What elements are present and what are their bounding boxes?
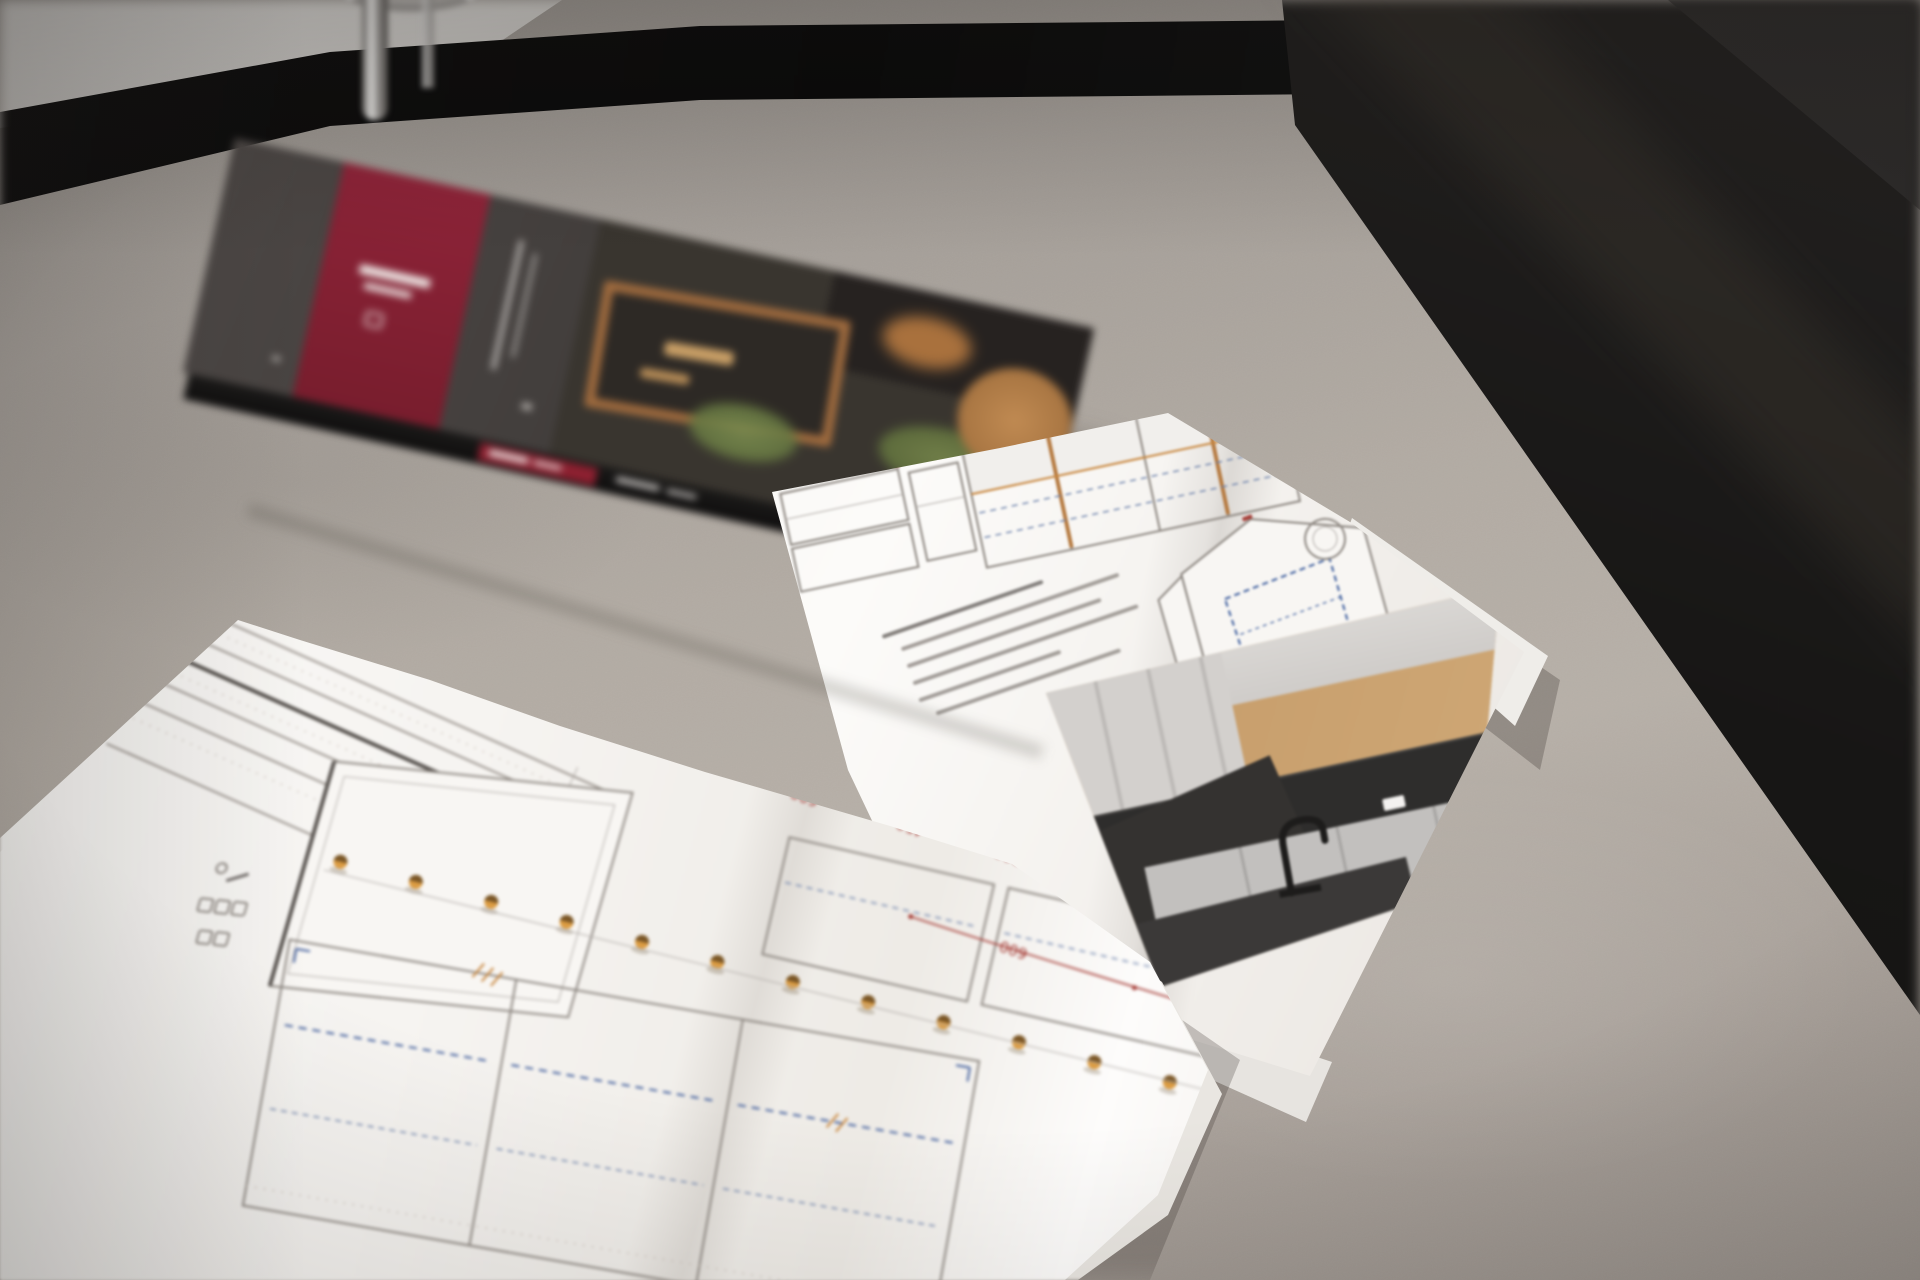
spine-title-text-blurred xyxy=(616,477,660,491)
dimension-label: 600 xyxy=(997,937,1030,963)
food-item xyxy=(663,341,734,366)
pan-handle-arc xyxy=(340,0,480,12)
cover-small-text-blurred xyxy=(272,355,281,362)
pan-handle-chrome xyxy=(340,0,510,150)
brand-logo-mark xyxy=(364,311,385,330)
spine-title-text-blurred xyxy=(666,489,696,499)
pan-handle-reflection xyxy=(422,0,434,88)
pan-handle-bar xyxy=(362,0,388,120)
food-item xyxy=(639,367,690,385)
brochure-red-band xyxy=(292,162,490,429)
spine-logo-text-blurred xyxy=(488,449,528,464)
cover-small-text-blurred xyxy=(521,403,532,411)
photo-kitchen-plans-scene: 600 450 300 3000 600 850 Spülmaschine xyxy=(0,0,1920,1280)
cover-vertical-title-blurred xyxy=(491,240,523,370)
spine-logo-text-blurred xyxy=(533,460,561,470)
brand-logo-text-blurred xyxy=(363,283,411,299)
